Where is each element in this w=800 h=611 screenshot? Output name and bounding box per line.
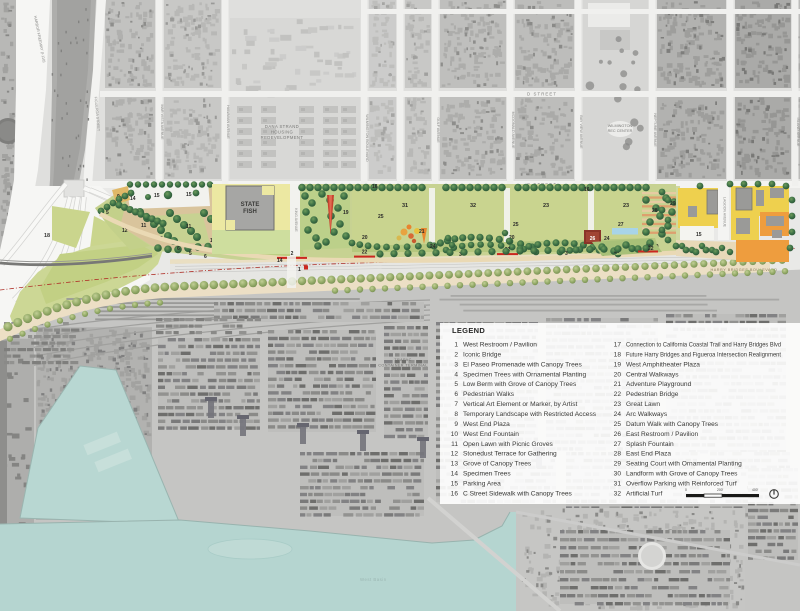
svg-text:WILMINGTON: WILMINGTON [608,124,633,128]
svg-text:TRAPAC: TRAPAC [394,358,412,362]
svg-text:BAY VIEW AVENUE: BAY VIEW AVENUE [579,115,583,149]
svg-text:REDEVELOPMENT: REDEVELOPMENT [261,135,304,140]
svg-text:CONTAINER TERMINAL: CONTAINER TERMINAL [378,364,427,368]
svg-text:ISLAND AVENUE: ISLAND AVENUE [796,117,800,147]
svg-text:REC CENTER: REC CENTER [608,129,633,133]
svg-text:18: 18 [44,233,50,239]
svg-text:HOUSING: HOUSING [271,130,293,135]
svg-text:WILMINGTON BOULEVARD: WILMINGTON BOULEVARD [365,114,369,162]
svg-text:West Basin: West Basin [360,577,387,582]
svg-text:NEPTUNE AVENUE: NEPTUNE AVENUE [653,113,657,147]
svg-text:HAWAIIAN AVENUE: HAWAIIAN AVENUE [226,105,230,139]
svg-text:GULF AVENUE: GULF AVENUE [436,117,440,143]
svg-text:DANA STRAND: DANA STRAND [265,124,299,129]
svg-text:MAR VISTA AVENUE: MAR VISTA AVENUE [160,104,164,140]
svg-text:D STREET: D STREET [527,92,557,97]
svg-text:MCDONALD AVENUE: MCDONALD AVENUE [511,112,515,149]
